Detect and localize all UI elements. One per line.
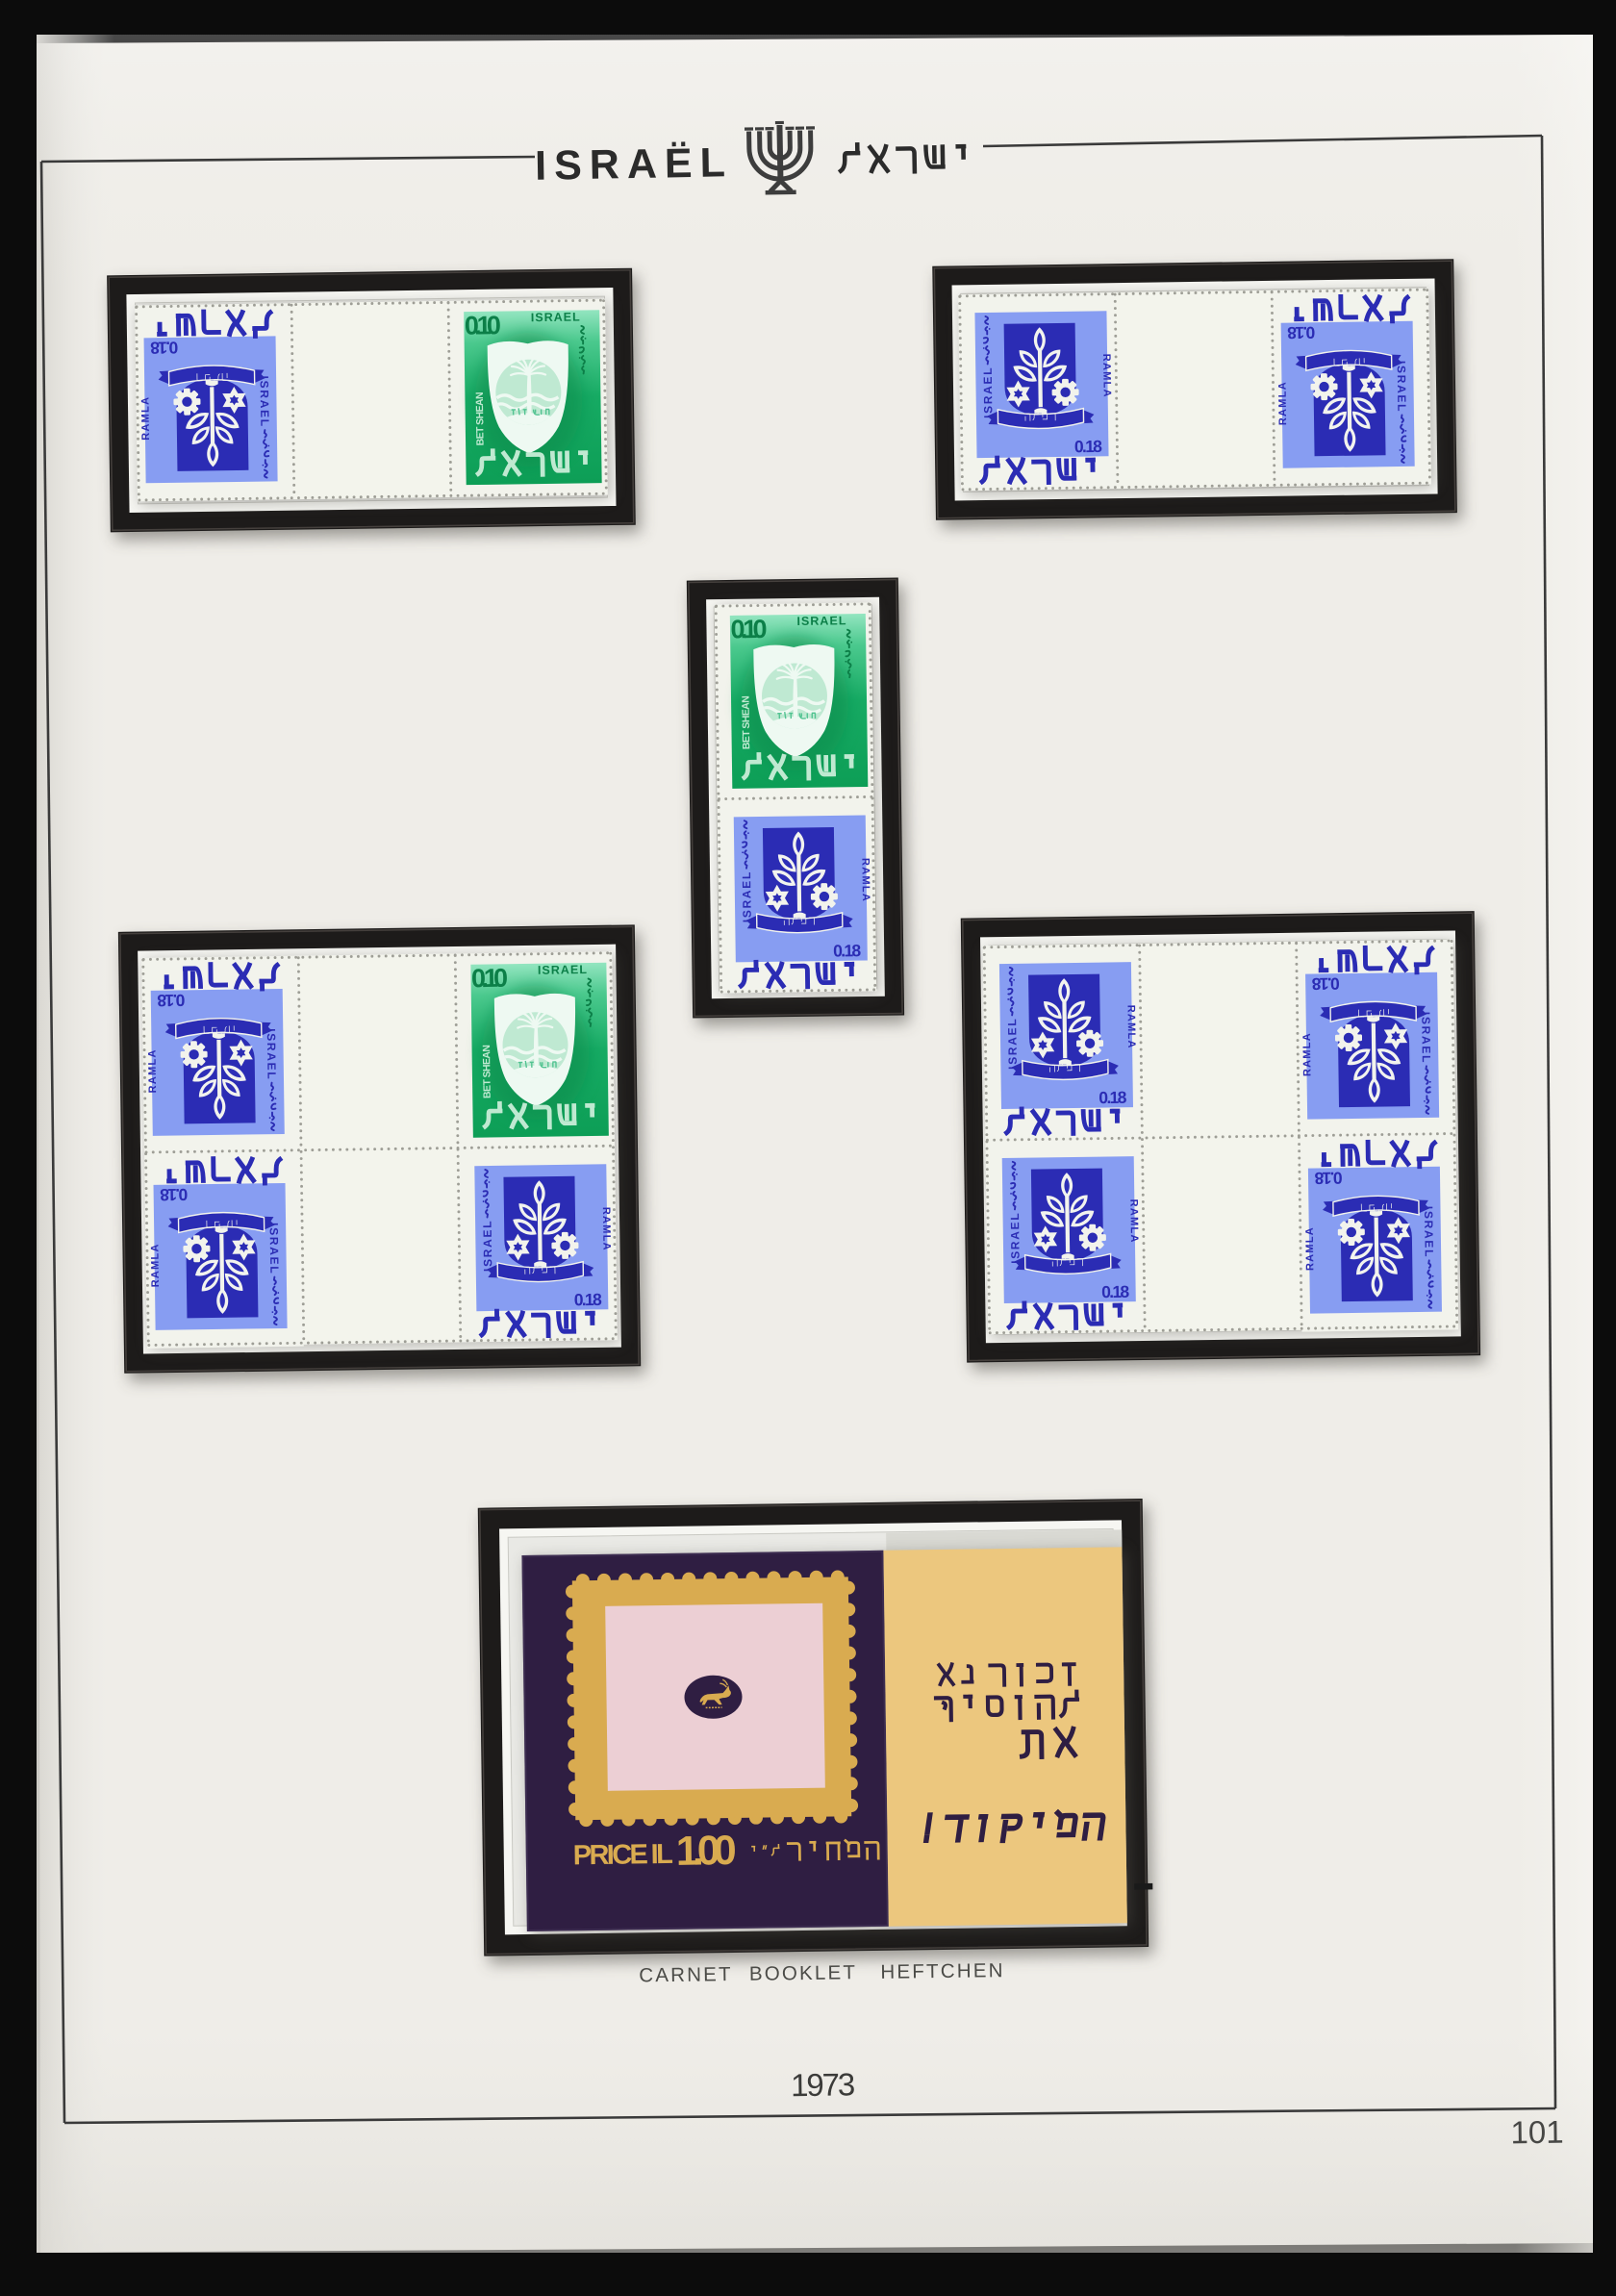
svg-text:HEFTCHEN: HEFTCHEN xyxy=(880,1959,1005,1983)
svg-text:ISRAËL: ISRAËL xyxy=(535,139,733,189)
svg-text:PRICE IL: PRICE IL xyxy=(573,1839,675,1871)
svg-text:1.00: 1.00 xyxy=(675,1828,737,1875)
svg-text:CARNET: CARNET xyxy=(639,1963,733,1986)
svg-text:101: 101 xyxy=(1510,2114,1564,2151)
svg-text:1973: 1973 xyxy=(791,2066,856,2103)
svg-text:BOOKLET: BOOKLET xyxy=(749,1961,858,1985)
